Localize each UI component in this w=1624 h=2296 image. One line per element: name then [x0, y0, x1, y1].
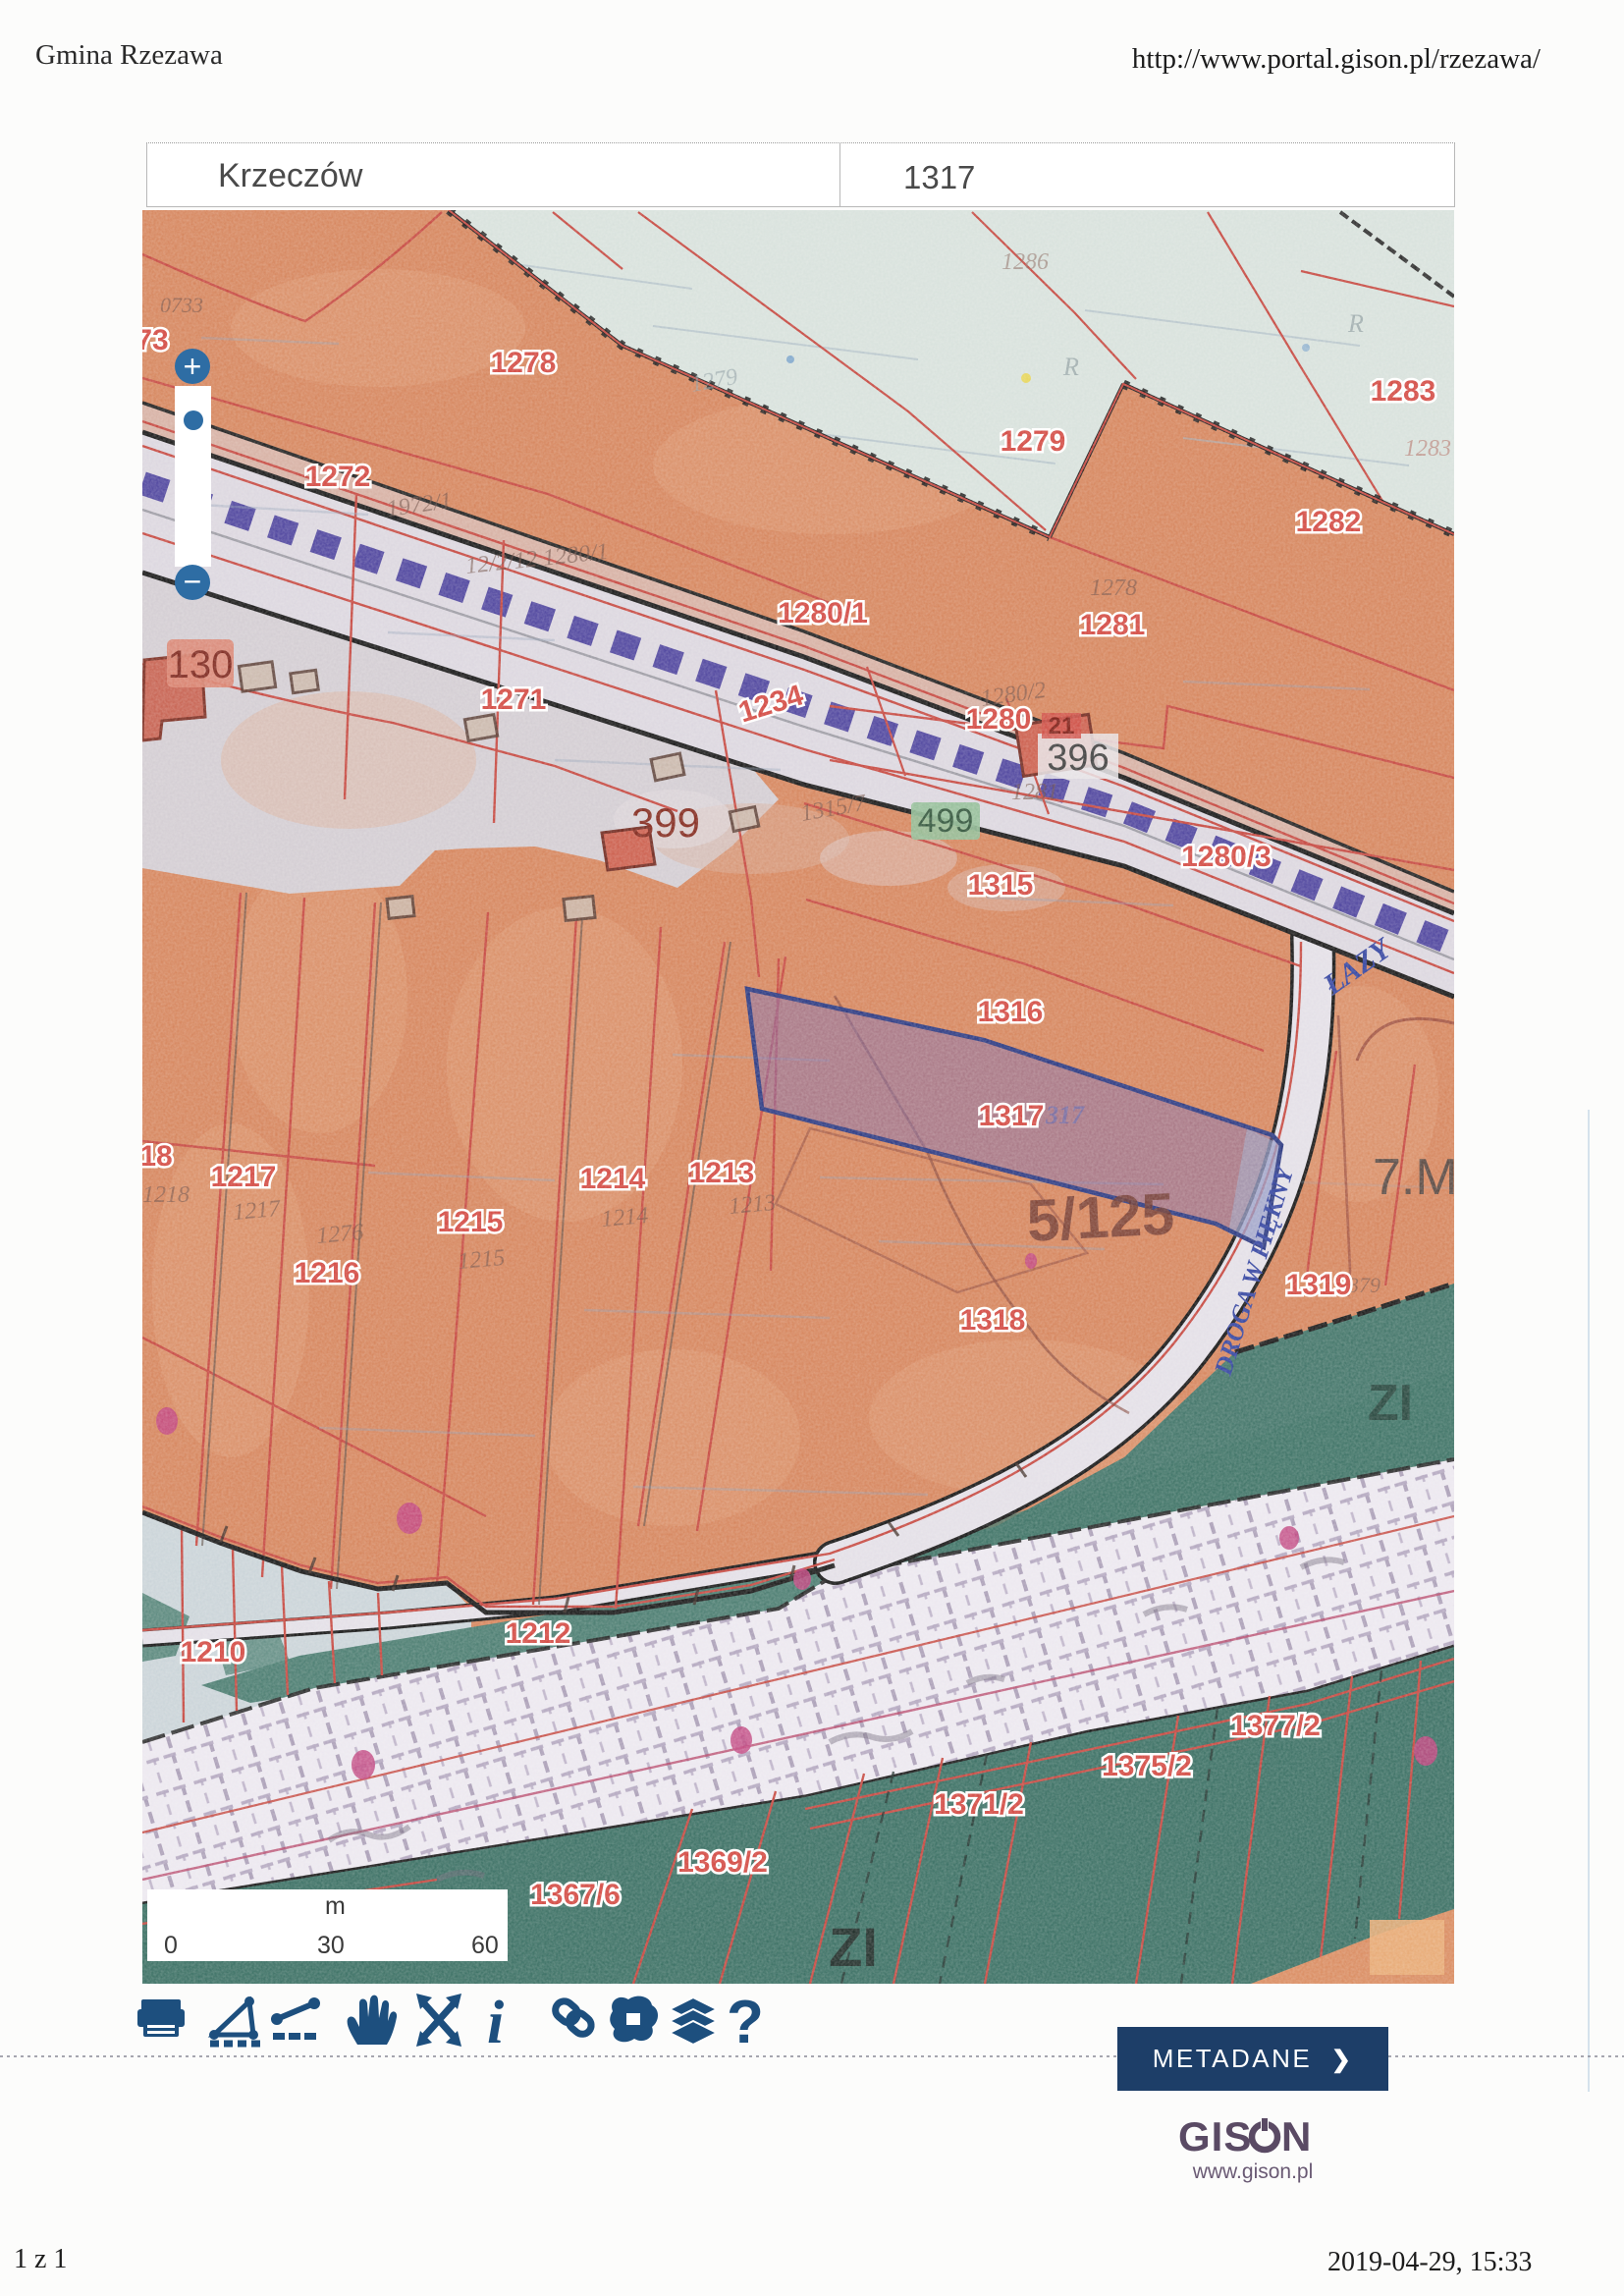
svg-text:i: i	[487, 1992, 504, 2052]
svg-text:?: ?	[727, 1992, 764, 2052]
svg-text:N: N	[1281, 2113, 1311, 2159]
svg-text:0: 0	[164, 1932, 178, 1959]
svg-text:+: +	[184, 349, 202, 384]
svg-text:30: 30	[317, 1932, 345, 1959]
svg-text:−: −	[184, 564, 202, 599]
svg-text:GIS: GIS	[1178, 2113, 1252, 2159]
svg-text:m: m	[325, 1892, 346, 1920]
svg-text:60: 60	[471, 1932, 499, 1959]
svg-text:www.gison.pl: www.gison.pl	[1192, 2160, 1314, 2183]
